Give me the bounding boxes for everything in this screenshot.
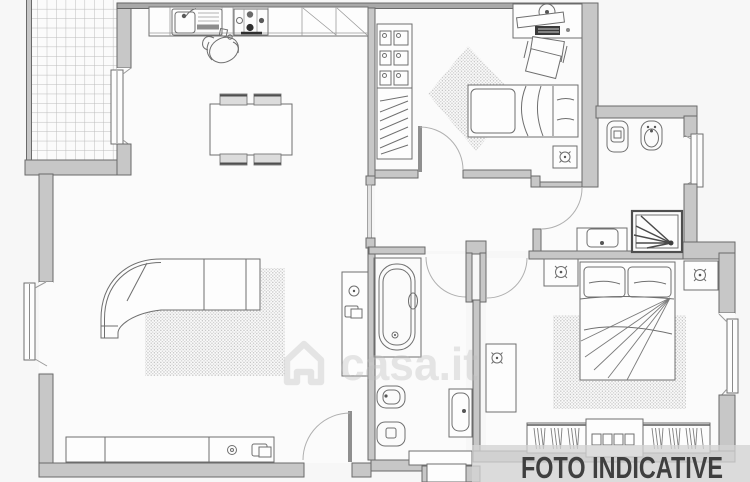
svg-text:casa.it: casa.it xyxy=(340,338,478,390)
svg-text:FOTO INDICATIVE: FOTO INDICATIVE xyxy=(521,450,723,482)
